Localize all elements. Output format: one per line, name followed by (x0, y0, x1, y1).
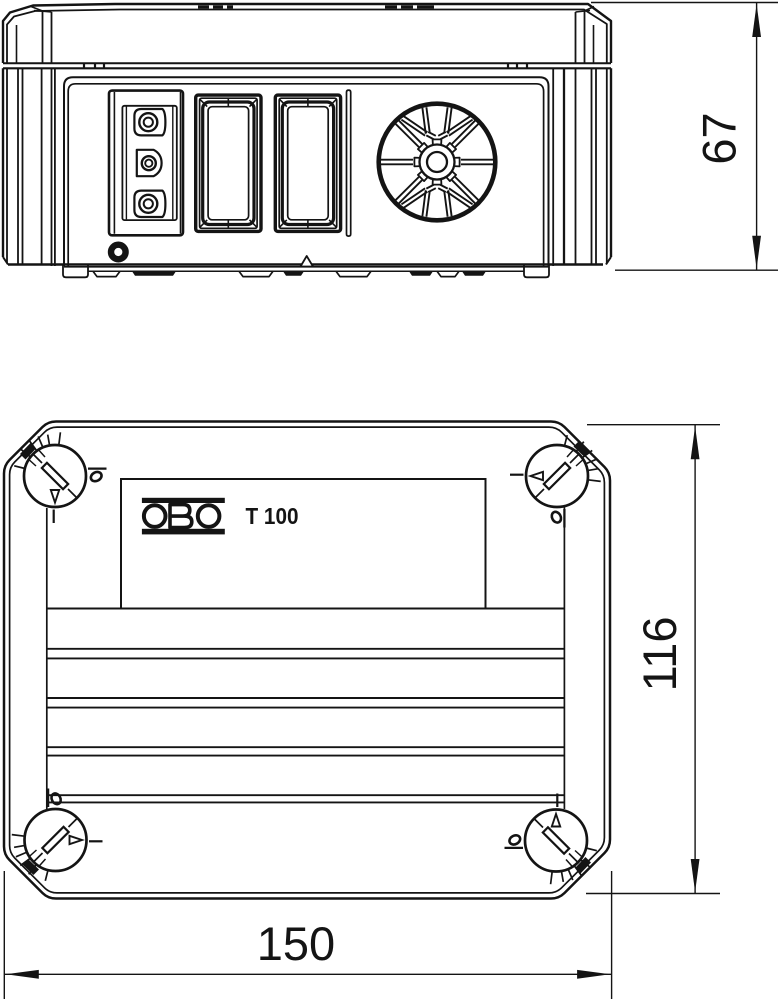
svg-text:T 100: T 100 (246, 503, 299, 529)
svg-text:150: 150 (257, 917, 335, 970)
svg-text:116: 116 (633, 617, 686, 692)
svg-text:67: 67 (693, 112, 746, 164)
